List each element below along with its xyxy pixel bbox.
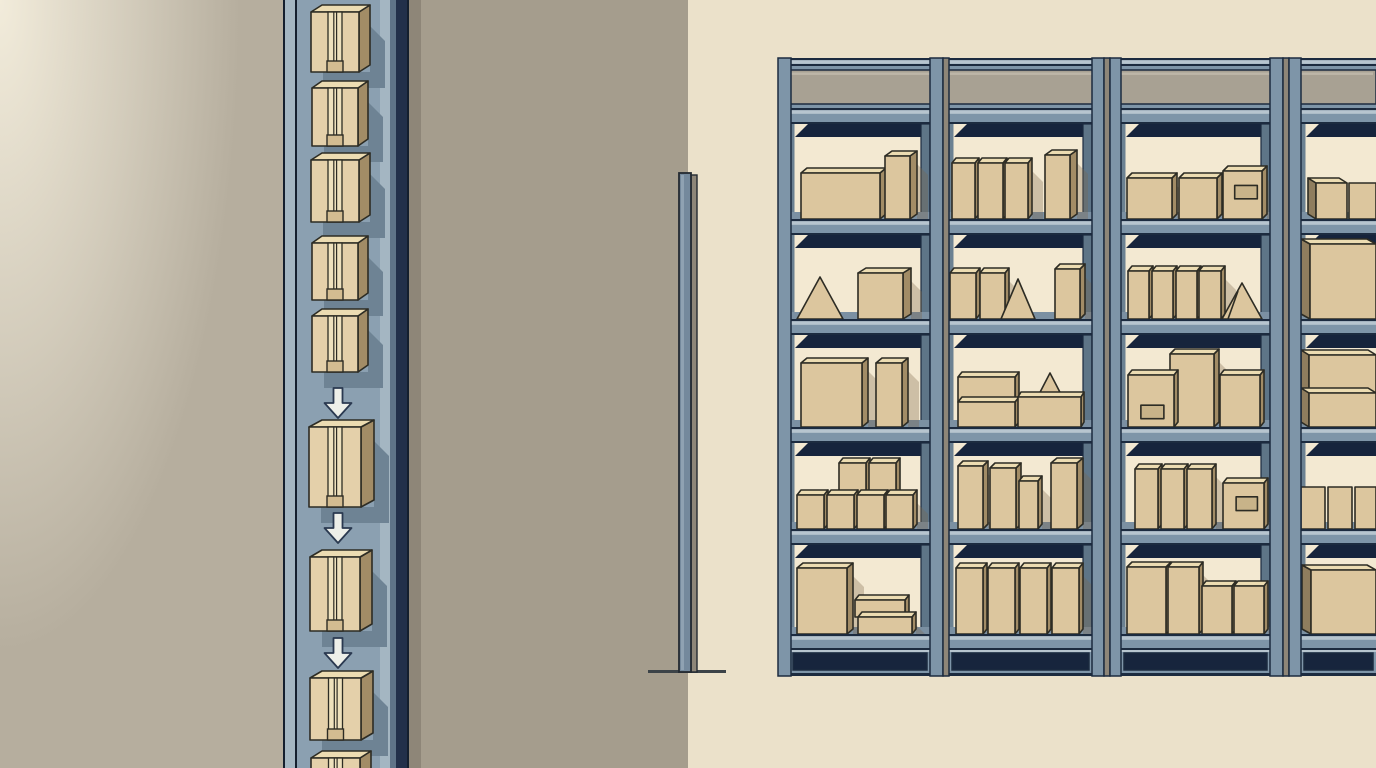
box-front [1045, 155, 1070, 219]
box-front [876, 363, 902, 427]
box-side [1308, 178, 1316, 219]
box-flap-tab [328, 729, 344, 740]
box-top [311, 751, 371, 758]
carton-box [1128, 370, 1178, 427]
box-front [1052, 568, 1079, 634]
shelf-cell-r2c3 [1121, 235, 1270, 319]
box-front [886, 495, 913, 529]
back-post [1261, 235, 1270, 319]
conveyor-rail [295, 0, 297, 768]
box-front [1127, 178, 1172, 219]
conveyor-rail [283, 0, 285, 768]
shelf-cell-r3c2 [949, 335, 1092, 427]
box-top [310, 671, 373, 678]
shelf-under-shadow [1126, 545, 1270, 558]
shelf-under-shadow [795, 124, 930, 137]
back-post [921, 545, 930, 634]
box-front [1316, 183, 1347, 219]
shelf-post [1092, 58, 1104, 676]
box-front [801, 173, 880, 219]
box-front [978, 163, 1003, 219]
box-label [1236, 497, 1257, 511]
shelf-cell-r1c1 [790, 124, 930, 219]
carton-box [801, 168, 897, 219]
box-front [1020, 568, 1047, 634]
shelf-under-shadow [795, 335, 930, 348]
box-label [1141, 405, 1164, 419]
box-side [359, 5, 370, 72]
box-side [903, 268, 911, 319]
carton-box [1328, 487, 1352, 529]
box-top [311, 5, 370, 12]
box-side [1301, 350, 1309, 393]
box-front [885, 156, 910, 219]
carton-box [1302, 565, 1376, 634]
shelf-cell-r1c2 [949, 124, 1092, 219]
scene-canvas [0, 0, 1376, 768]
box-front [1349, 183, 1376, 219]
shelf-under-shadow [954, 335, 1092, 348]
box-front [1202, 586, 1232, 634]
shelf-base-panel [793, 653, 927, 670]
shelf-cell-r2c4 [1301, 235, 1376, 319]
shelf-cell-r5c1 [790, 545, 930, 636]
box-top [311, 153, 370, 160]
shelf-cell-r4c4 [1301, 443, 1376, 529]
box-front [958, 466, 983, 529]
carton-box [1349, 183, 1376, 219]
box-side [1302, 565, 1311, 634]
conveyor-rail [390, 0, 396, 768]
box-front [858, 273, 903, 319]
shelf-cell-r5c3 [1121, 545, 1279, 634]
carton-box [1220, 370, 1264, 427]
box-front [1199, 271, 1221, 319]
box-front [1127, 567, 1166, 634]
box-side [1301, 388, 1309, 427]
shelf-post [778, 58, 791, 676]
carton-box [1355, 487, 1376, 529]
box-side [361, 671, 373, 740]
box-front [1168, 567, 1199, 634]
box-top [310, 550, 372, 557]
box-side [358, 81, 368, 146]
box-side [862, 358, 868, 427]
box-flap-tab [327, 289, 343, 300]
box-front [1055, 269, 1080, 319]
box-front [980, 273, 1005, 319]
shelf-cell-r3c1 [790, 335, 930, 427]
box-side [910, 151, 917, 219]
box-front [1019, 481, 1038, 529]
conveyor-rail [285, 0, 295, 768]
carton-box [1018, 392, 1084, 427]
shelf-under-shadow [954, 235, 1092, 248]
shelf-under-shadow [795, 545, 930, 558]
box-front [801, 363, 862, 427]
box-flap-tab [327, 496, 343, 507]
box-front [1128, 271, 1149, 319]
pole-front [679, 173, 691, 672]
box-front [952, 163, 975, 219]
box-side [1301, 239, 1310, 319]
shelf-post [1110, 58, 1121, 676]
shelf-cell-r2c2 [949, 235, 1096, 319]
shelf-post [1283, 58, 1289, 676]
shelf-post [943, 58, 949, 676]
back-post [921, 335, 930, 427]
shelf-cell-r4c2 [949, 443, 1094, 529]
shelf-cell-r5c4 [1301, 545, 1376, 634]
box-side [359, 153, 370, 222]
carton-box [1301, 487, 1325, 529]
shelving-unit [778, 58, 1376, 676]
box-front [1220, 375, 1260, 427]
conveyor-rail [409, 0, 421, 768]
conveyor-rail [407, 0, 409, 768]
light-glow [0, 0, 283, 768]
box-front [1152, 271, 1173, 319]
box-top [309, 420, 374, 427]
shelf-under-shadow [954, 545, 1092, 558]
box-flap-tab [327, 211, 343, 222]
shelf-under-shadow [1126, 335, 1270, 348]
box-front [1161, 469, 1184, 529]
box-front [1328, 487, 1352, 529]
box-front [1309, 393, 1376, 427]
conveyor [283, 0, 421, 768]
carton-box [858, 612, 927, 636]
box-front [858, 617, 912, 634]
shelf-cell-r1c4 [1301, 124, 1376, 219]
box-side [1070, 150, 1077, 219]
box-front [1018, 397, 1081, 427]
shelf-post [1270, 58, 1283, 676]
box-front [1135, 469, 1158, 529]
box-top [312, 309, 368, 316]
box-front [958, 402, 1015, 427]
shelf-cell-r3c4 [1301, 335, 1376, 427]
conveyor-rail-right [396, 0, 407, 768]
box-top [312, 236, 368, 243]
box-front [988, 568, 1015, 634]
box-front [1355, 487, 1376, 529]
box-side [360, 550, 372, 631]
box-tape [329, 758, 343, 768]
shelf-post [1104, 58, 1110, 676]
pole-side [691, 175, 697, 672]
shelf-post [1289, 58, 1301, 676]
shelf-under-shadow [1126, 235, 1270, 248]
carton-box [1301, 350, 1376, 393]
box-front [1005, 163, 1028, 219]
warehouse-illustration [0, 0, 1376, 768]
box-flap-tab [327, 620, 343, 631]
box-side [358, 309, 368, 372]
shelf-base-panel [1304, 653, 1373, 670]
box-side [847, 563, 853, 634]
shelf-under-shadow [795, 443, 930, 456]
box-front [797, 568, 847, 634]
carton-box [801, 358, 879, 427]
shelf-header-panel [784, 70, 936, 104]
box-label [1235, 185, 1258, 198]
box-flap-tab [327, 361, 343, 372]
box-flap-tab [327, 135, 343, 146]
box-front [1176, 271, 1197, 319]
box-side [361, 420, 374, 507]
pole-highlight [681, 175, 684, 670]
box-flap-tab [327, 61, 343, 72]
shelf-cell-r3c3 [1121, 335, 1270, 427]
box-side [1077, 458, 1083, 529]
shelf-under-shadow [954, 124, 1092, 137]
box-front [1234, 586, 1264, 634]
box-side [358, 236, 368, 300]
box-front [956, 568, 983, 634]
shelf-cell-r4c3 [1121, 443, 1279, 529]
shelf-cell-r4c1 [790, 443, 930, 529]
box-front [1301, 487, 1325, 529]
shelf-base-panel [952, 653, 1089, 670]
back-post [921, 235, 930, 319]
shelf-cell-r5c2 [949, 545, 1094, 634]
box-front [950, 273, 976, 319]
carton-box [1301, 388, 1376, 427]
box-front [1311, 570, 1376, 634]
shelf-under-shadow [1126, 443, 1270, 456]
box-front [1179, 178, 1217, 219]
shelf-header-panel [1115, 70, 1276, 104]
carton-box [1308, 178, 1347, 219]
shelf-cell-r1c3 [1121, 124, 1278, 219]
box-front [1051, 463, 1077, 529]
box-front [1310, 244, 1376, 319]
shelf-post [930, 58, 943, 676]
box-front [857, 495, 884, 529]
box-side [902, 358, 908, 427]
shelf-under-shadow [954, 443, 1092, 456]
shelf-base-panel [1124, 653, 1267, 670]
box-top [312, 81, 368, 88]
box-front [990, 468, 1016, 529]
box-front [797, 495, 824, 529]
box-front [827, 495, 854, 529]
box-front [1187, 469, 1212, 529]
shelf-header-panel [1295, 70, 1376, 104]
shelf-under-shadow [795, 235, 930, 248]
shelf-header-panel [941, 70, 1098, 104]
box-tape [328, 427, 342, 507]
shelf-under-shadow [1126, 124, 1270, 137]
carton-box [1301, 239, 1376, 319]
shelf-cell-r2c1 [790, 235, 930, 319]
